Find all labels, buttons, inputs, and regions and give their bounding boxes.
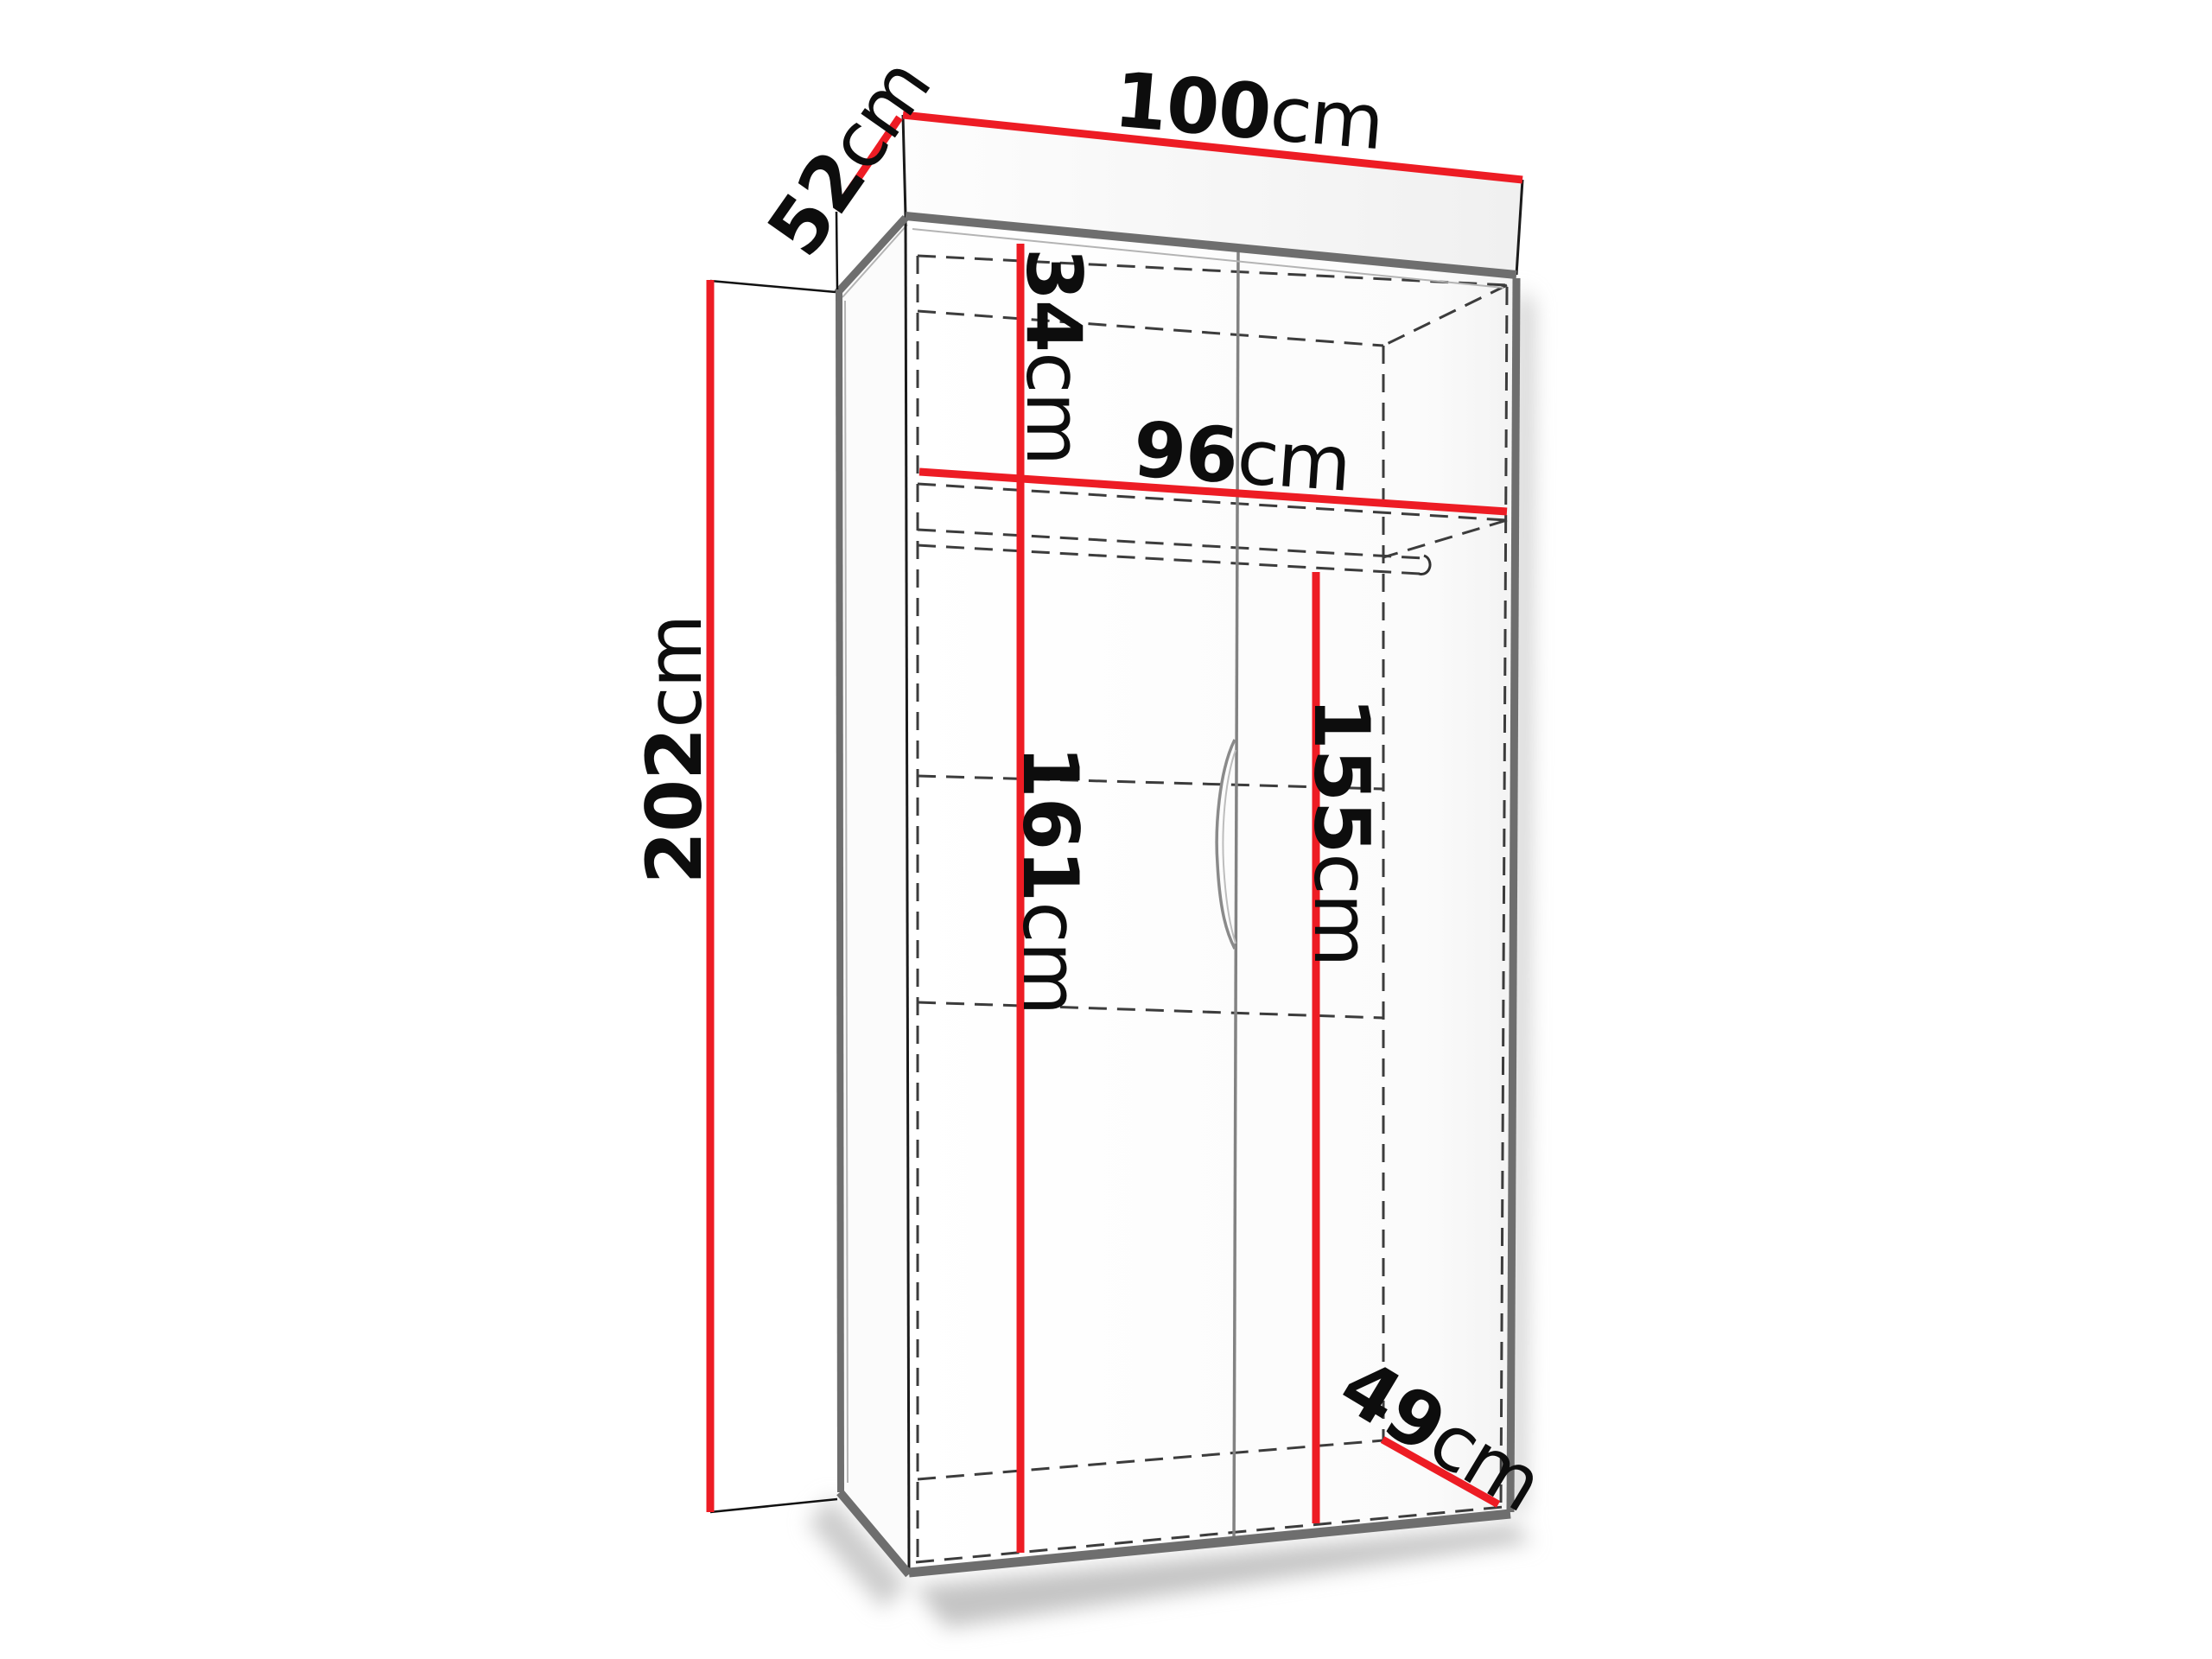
label-interior-width: 96cm xyxy=(1130,404,1352,508)
label-height-left: 202cm xyxy=(630,616,719,885)
label-interior-height-left: 161cm xyxy=(1007,746,1096,1014)
height-bottom-tick xyxy=(710,1499,837,1512)
label-top-section-height: 34cm xyxy=(1010,248,1099,465)
height-top-tick xyxy=(710,281,836,292)
left-panel-back-edge xyxy=(839,291,841,1492)
label-interior-height-right: 155cm xyxy=(1298,697,1387,966)
diagram-canvas: 100cm 52cm 202cm 34cm 96cm 161cm 155cm 4… xyxy=(0,0,2212,1659)
wardrobe-diagram: 100cm 52cm 202cm 34cm 96cm 161cm 155cm 4… xyxy=(0,0,2212,1659)
extension-lines xyxy=(710,212,837,1512)
